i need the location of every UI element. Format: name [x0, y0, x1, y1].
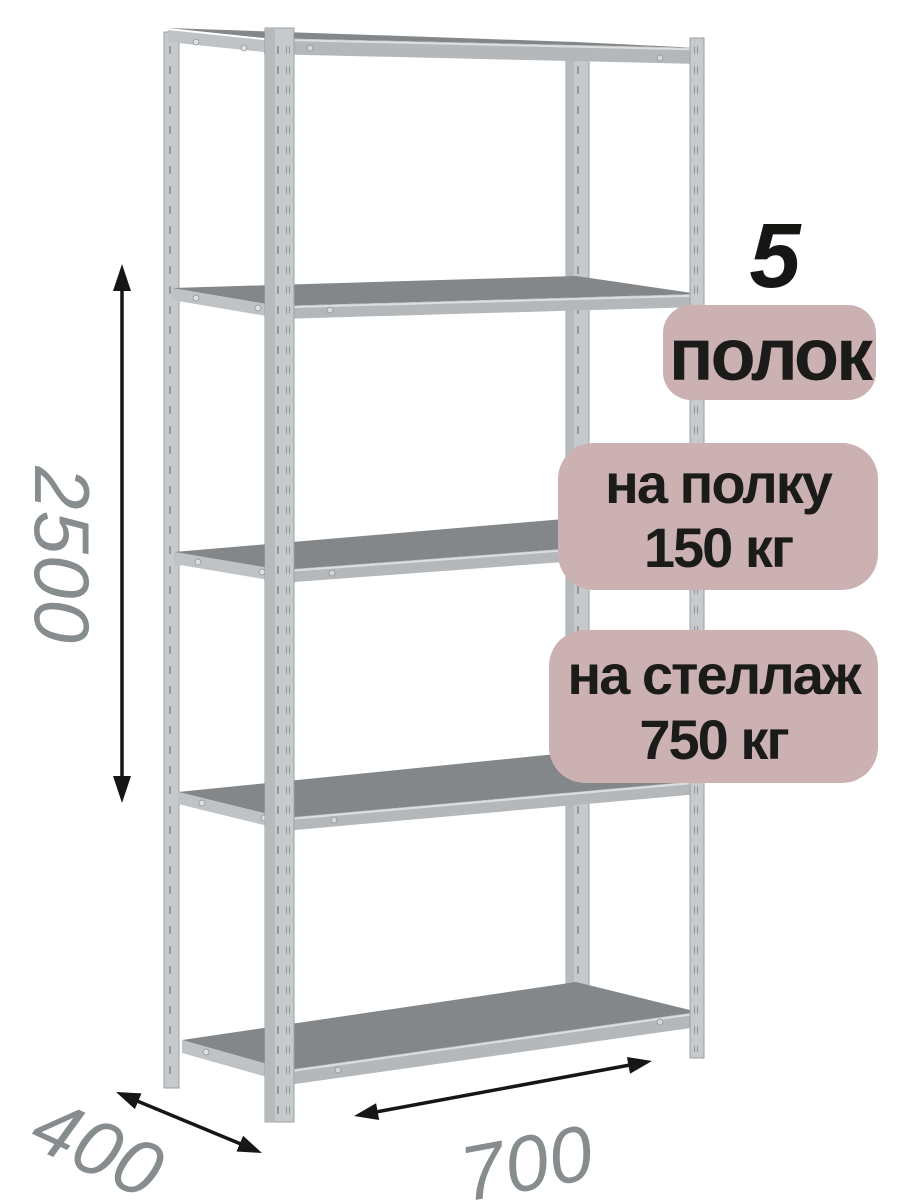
badge-load-per-shelf-line1: на полку: [558, 452, 878, 516]
badge-load-per-rack-line1: на стеллаж: [549, 642, 878, 707]
height-dimension-arrow: [113, 264, 131, 803]
badge-load-per-rack-line2: 750 кг: [549, 707, 878, 772]
height-dimension-label: 2500: [18, 465, 106, 644]
shelf-count-number: 5: [700, 206, 850, 306]
badge-load-per-shelf: на полку 150 кг: [558, 443, 878, 590]
shelf-1: [168, 28, 700, 64]
product-dimension-diagram: 2500 400 700 5 полок на полку 150 кг на …: [0, 0, 900, 1200]
post-front-left: [265, 28, 294, 1122]
shelving-unit-illustration: 2500 400 700: [0, 0, 900, 1200]
badge-shelf-count-label: полок: [663, 305, 876, 400]
depth-dimension-label: 400: [19, 1080, 177, 1200]
badge-load-per-rack: на стеллаж 750 кг: [549, 630, 878, 783]
shelf-5: [182, 982, 698, 1085]
shelf-2: [172, 276, 699, 319]
badge-load-per-shelf-line2: 150 кг: [558, 516, 878, 580]
width-dimension-label: 700: [454, 1108, 601, 1200]
